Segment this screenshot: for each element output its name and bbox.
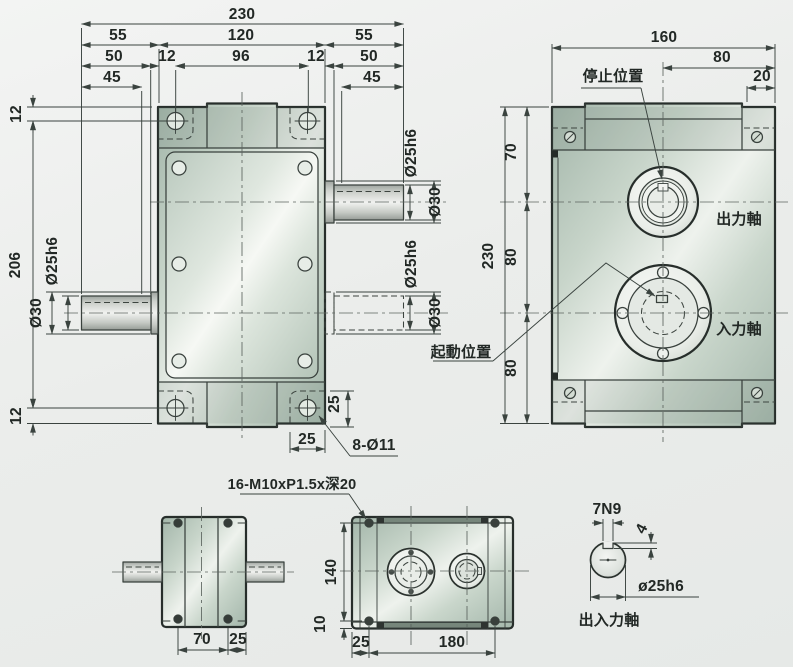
top-view-body — [112, 507, 294, 639]
front-view: 230 55 120 55 50 12 96 12 50 45 45 12 20… — [7, 6, 448, 456]
front-dim-d30-input-shaft: Ø30 — [427, 298, 444, 328]
top-view-dimensions: 70 25 — [178, 628, 247, 655]
front-dim-45-right: 45 — [363, 69, 381, 86]
side-dim-230: 230 — [480, 243, 497, 269]
top-view: 70 25 — [112, 507, 294, 655]
holes-leader-line — [319, 416, 350, 456]
side-view: 160 80 20 230 70 80 80 停止位置 起動位置 出力軸 入力軸 — [430, 29, 788, 442]
detail-dim-diameter: ø25h6 — [638, 578, 684, 595]
technical-drawing-canvas: 230 55 120 55 50 12 96 12 50 45 45 12 20… — [0, 0, 793, 667]
side-dim-70: 70 — [503, 143, 520, 161]
front-dim-d30-left-shaft: Ø30 — [28, 298, 45, 328]
shaft-detail-geometry — [591, 542, 626, 578]
shaft-detail-view: 7N9 4 ø25h6 出入力軸 — [579, 501, 699, 629]
front-dim-25-vert: 25 — [326, 395, 343, 413]
bottom-top-strip — [377, 518, 488, 524]
side-edge-tick-bottom — [552, 373, 558, 380]
top-dim-70: 70 — [193, 631, 211, 648]
front-dim-55-left: 55 — [109, 27, 127, 44]
front-dim-50-right: 50 — [360, 48, 378, 65]
tap-leader-line — [349, 494, 366, 519]
output-shaft-label: 出力軸 — [716, 210, 762, 228]
bottom-dim-180: 180 — [439, 634, 465, 651]
front-label-8-holes: 8-Ø11 — [352, 437, 395, 454]
side-dim-80-top: 80 — [713, 49, 731, 66]
front-dim-d25-input-shaft: Ø25h6 — [403, 240, 420, 289]
start-position-label: 起動位置 — [430, 343, 492, 361]
front-dim-12-left: 12 — [158, 48, 176, 65]
stop-position-label: 停止位置 — [583, 67, 644, 85]
front-dim-d25-left-shaft: Ø25h6 — [44, 237, 61, 286]
front-dim-120: 120 — [228, 27, 254, 44]
input-shaft-label: 入力軸 — [716, 320, 762, 338]
detail-dim-key-depth: 4 — [632, 521, 651, 537]
top-dim-25: 25 — [229, 631, 247, 648]
front-dim-206: 206 — [7, 252, 24, 279]
front-bottom-flange-shade — [158, 382, 325, 424]
front-dim-d30-output-shaft: Ø30 — [427, 187, 444, 217]
side-dim-160: 160 — [651, 29, 677, 46]
front-dim-50-left: 50 — [105, 48, 123, 65]
side-dim-80-mid: 80 — [503, 248, 520, 266]
side-dim-80-bottom: 80 — [503, 359, 520, 377]
front-dim-12-bottom: 12 — [8, 407, 25, 425]
front-dim-96: 96 — [232, 48, 250, 65]
front-dim-230: 230 — [229, 6, 255, 23]
side-edge-tick-top — [552, 151, 558, 158]
front-view-body — [64, 92, 448, 440]
front-dim-d25-output-shaft: Ø25h6 — [403, 129, 420, 178]
detail-dim-key-width: 7N9 — [592, 501, 621, 518]
front-dim-12-right: 12 — [307, 48, 325, 65]
front-top-flange-shade — [158, 107, 325, 148]
bottom-dim-25: 25 — [352, 634, 370, 651]
front-dim-12-top: 12 — [8, 105, 25, 123]
bottom-view-body — [340, 506, 531, 645]
bottom-dim-140: 140 — [323, 559, 340, 585]
side-dim-20: 20 — [753, 68, 771, 85]
front-dim-55-right: 55 — [355, 27, 373, 44]
bottom-dim-10: 10 — [312, 615, 329, 633]
tap-holes-label: 16-M10xP1.5x深20 — [228, 475, 357, 493]
front-dim-45-left: 45 — [103, 69, 121, 86]
side-view-body — [500, 62, 788, 442]
front-dim-25-horiz: 25 — [298, 431, 316, 448]
input-keyway — [657, 296, 668, 303]
bottom-bottom-strip — [377, 623, 488, 629]
shaft-keyway-mask — [603, 542, 613, 549]
io-shaft-label: 出入力軸 — [579, 611, 640, 629]
